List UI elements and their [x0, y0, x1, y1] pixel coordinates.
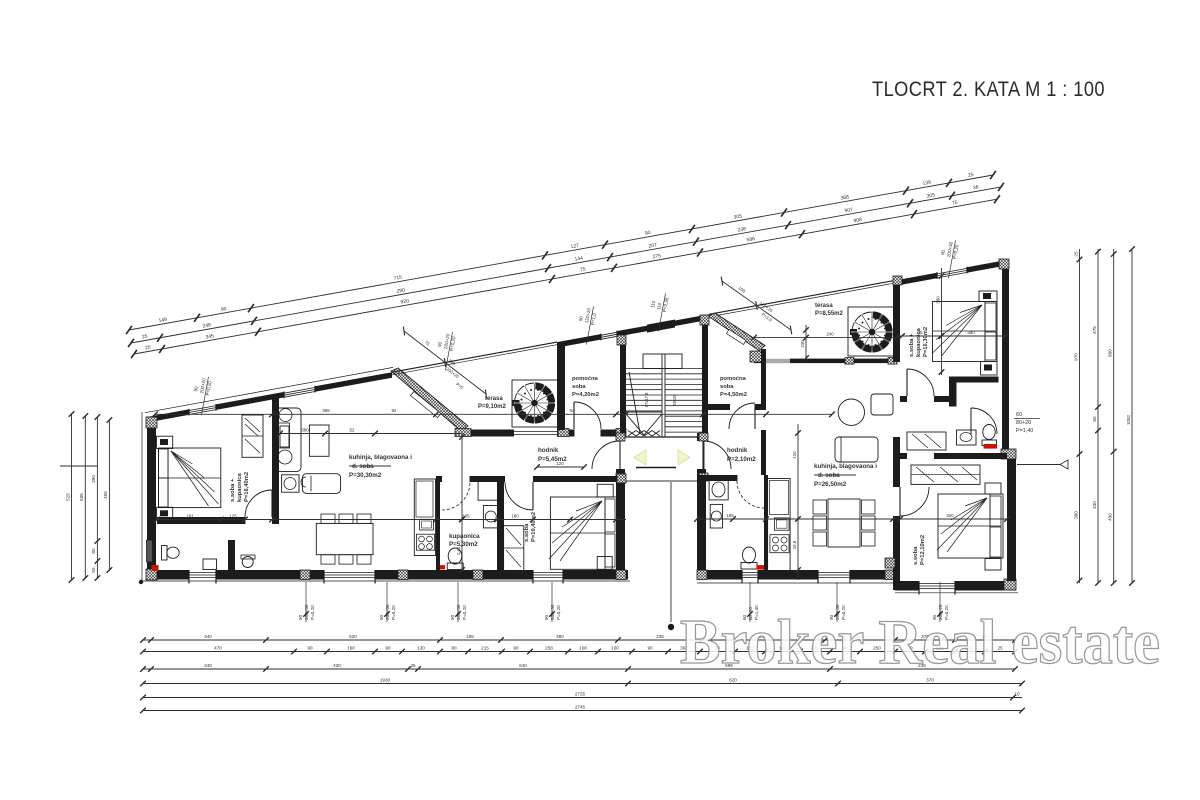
- svg-text:200+30: 200+30: [456, 604, 461, 620]
- svg-text:s.soba: s.soba: [913, 546, 919, 565]
- svg-text:430: 430: [1092, 501, 1097, 509]
- svg-text:kupaonica: kupaonica: [916, 328, 922, 357]
- svg-text:100: 100: [611, 645, 619, 650]
- svg-text:1930: 1930: [380, 677, 391, 682]
- svg-text:90: 90: [385, 645, 391, 650]
- svg-text:2725: 2725: [575, 691, 586, 696]
- svg-text:90: 90: [647, 645, 653, 650]
- svg-text:470: 470: [214, 645, 222, 650]
- svg-text:380: 380: [556, 634, 564, 639]
- svg-text:P=30,30m2: P=30,30m2: [349, 472, 382, 479]
- svg-text:200+30: 200+30: [304, 604, 309, 620]
- svg-text:soba: soba: [572, 384, 586, 390]
- svg-text:P=2,10m2: P=2,10m2: [727, 456, 756, 463]
- svg-text:25: 25: [410, 663, 416, 668]
- svg-text:258: 258: [545, 645, 553, 650]
- svg-text:370: 370: [926, 677, 934, 682]
- svg-text:pomoćna: pomoćna: [572, 376, 599, 382]
- svg-text:P=5,45m2: P=5,45m2: [538, 456, 567, 463]
- svg-text:28x28: 28x28: [672, 394, 677, 406]
- svg-text:430: 430: [1108, 513, 1113, 521]
- svg-text:hodnik: hodnik: [727, 447, 748, 454]
- svg-text:180: 180: [511, 513, 519, 518]
- svg-text:s.soba +: s.soba +: [230, 478, 236, 502]
- svg-text:181: 181: [186, 513, 194, 518]
- svg-text:kuhinja, blagovaona i: kuhinja, blagovaona i: [349, 454, 412, 461]
- svg-text:terasa: terasa: [485, 396, 503, 402]
- svg-text:230: 230: [800, 340, 805, 348]
- svg-text:52: 52: [350, 427, 355, 432]
- svg-text:455: 455: [103, 491, 108, 499]
- svg-text:185: 185: [726, 513, 734, 518]
- svg-text:s.soba +: s.soba +: [909, 333, 915, 357]
- svg-text:terasa: terasa: [815, 303, 833, 309]
- svg-text:200+30: 200+30: [385, 604, 390, 620]
- svg-text:200+30: 200+30: [550, 604, 555, 620]
- svg-text:P=8,55m2: P=8,55m2: [815, 311, 844, 317]
- svg-text:P=26,50m2: P=26,50m2: [814, 481, 847, 488]
- svg-text:16,8: 16,8: [792, 540, 797, 549]
- svg-text:60: 60: [1016, 412, 1022, 418]
- svg-text:kuhinja, blagovaona i: kuhinja, blagovaona i: [814, 463, 877, 470]
- svg-text:soba: soba: [720, 384, 734, 390]
- svg-text:970: 970: [1073, 353, 1078, 361]
- svg-text:2745: 2745: [575, 704, 586, 709]
- svg-text:800: 800: [1108, 349, 1113, 357]
- svg-text:hodnik: hodnik: [538, 447, 559, 454]
- svg-text:90: 90: [544, 614, 549, 620]
- svg-text:340: 340: [204, 634, 212, 639]
- svg-text:380: 380: [301, 427, 309, 432]
- svg-text:TLOCRT 2. KATA M 1 : 100: TLOCRT 2. KATA M 1 : 100: [872, 78, 1105, 101]
- svg-text:55: 55: [91, 567, 96, 573]
- svg-text:P=0,20: P=0,20: [391, 605, 396, 620]
- svg-text:P=10,40m2: P=10,40m2: [531, 512, 537, 542]
- svg-text:525: 525: [65, 493, 70, 501]
- svg-text:P=0,20: P=0,20: [556, 605, 561, 620]
- svg-text:17x17,8: 17x17,8: [644, 392, 649, 408]
- svg-text:380: 380: [935, 296, 940, 304]
- svg-text:P=16,30m2: P=16,30m2: [923, 327, 929, 357]
- svg-text:d. soba: d. soba: [818, 472, 840, 479]
- svg-text:kupaonica: kupaonica: [449, 533, 480, 540]
- svg-text:90: 90: [307, 645, 313, 650]
- svg-text:420: 420: [333, 663, 341, 668]
- svg-text:P=12,10m2: P=12,10m2: [920, 535, 926, 565]
- svg-text:P=4,50m2: P=4,50m2: [720, 392, 747, 398]
- svg-text:92: 92: [570, 408, 575, 413]
- svg-text:240: 240: [826, 331, 834, 336]
- svg-text:380: 380: [1073, 511, 1078, 519]
- svg-text:130: 130: [417, 645, 425, 650]
- svg-text:90: 90: [379, 614, 384, 620]
- svg-text:108: 108: [579, 645, 587, 650]
- svg-text:P=9,10m2: P=9,10m2: [478, 404, 507, 410]
- svg-text:Broker Real estate: Broker Real estate: [680, 606, 1160, 677]
- svg-text:90: 90: [298, 614, 303, 620]
- svg-text:215: 215: [481, 645, 489, 650]
- svg-text:160: 160: [347, 645, 355, 650]
- svg-text:520: 520: [349, 634, 357, 639]
- svg-text:640: 640: [519, 663, 527, 668]
- svg-text:P=0,20: P=0,20: [462, 605, 467, 620]
- svg-text:s.soba: s.soba: [524, 523, 530, 542]
- svg-text:kupaonica: kupaonica: [237, 473, 243, 502]
- svg-text:P=5,30m2: P=5,30m2: [449, 541, 478, 548]
- svg-text:90: 90: [450, 614, 455, 620]
- svg-text:380: 380: [967, 330, 975, 335]
- svg-text:320: 320: [946, 513, 954, 518]
- svg-text:80: 80: [451, 645, 457, 650]
- svg-text:1082: 1082: [1126, 414, 1131, 425]
- svg-text:P=1,40: P=1,40: [1016, 428, 1033, 434]
- svg-text:390: 390: [91, 475, 96, 483]
- svg-text:340: 340: [204, 663, 212, 668]
- svg-text:P=4,20m2: P=4,20m2: [572, 392, 599, 398]
- svg-text:620: 620: [729, 677, 737, 682]
- svg-text:pomoćna: pomoćna: [720, 376, 747, 382]
- svg-text:P=16,40m2: P=16,40m2: [244, 472, 250, 502]
- svg-text:475: 475: [1092, 326, 1097, 334]
- svg-text:505: 505: [79, 493, 84, 501]
- svg-text:80+20: 80+20: [1016, 420, 1031, 426]
- svg-text:235: 235: [656, 634, 664, 639]
- svg-text:d. soba: d. soba: [352, 463, 374, 470]
- svg-text:125: 125: [229, 513, 237, 518]
- svg-text:92: 92: [392, 408, 397, 413]
- svg-text:120: 120: [792, 451, 797, 459]
- svg-text:185: 185: [466, 634, 474, 639]
- svg-text:P=0,20: P=0,20: [310, 605, 315, 620]
- svg-text:25: 25: [1073, 251, 1078, 257]
- svg-text:398: 398: [322, 408, 330, 413]
- svg-text:90: 90: [513, 645, 519, 650]
- svg-text:80: 80: [91, 548, 96, 554]
- svg-text:10: 10: [1014, 691, 1020, 696]
- svg-text:60: 60: [1092, 416, 1097, 422]
